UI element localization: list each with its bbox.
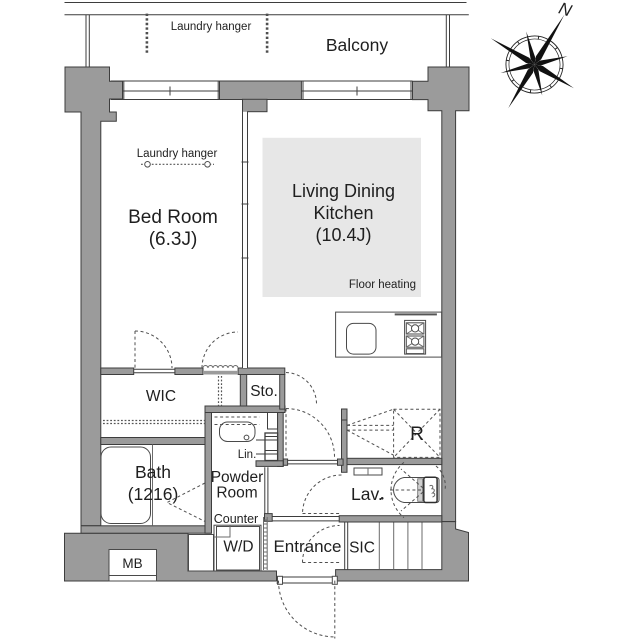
svg-text:Sto.: Sto. (250, 383, 278, 400)
svg-text:Living Dining: Living Dining (292, 181, 395, 201)
svg-text:SIC: SIC (349, 540, 375, 557)
svg-text:Floor heating: Floor heating (349, 279, 416, 291)
svg-text:Room: Room (216, 485, 257, 502)
svg-text:Lav.: Lav. (351, 484, 383, 504)
svg-text:Laundry hanger: Laundry hanger (137, 148, 218, 160)
svg-text:R: R (410, 424, 424, 445)
svg-text:Powder: Powder (211, 469, 264, 486)
svg-text:(6.3J): (6.3J) (149, 229, 198, 250)
svg-text:Laundry hanger: Laundry hanger (171, 21, 252, 33)
svg-text:Entrance: Entrance (273, 537, 341, 556)
svg-text:MB: MB (122, 556, 142, 571)
svg-text:N: N (556, 0, 574, 21)
svg-text:Counter: Counter (214, 512, 258, 526)
svg-text:Kitchen: Kitchen (313, 203, 373, 223)
svg-text:Lin.: Lin. (238, 449, 257, 461)
svg-text:W/D: W/D (223, 539, 253, 556)
svg-text:Balcony: Balcony (326, 35, 389, 55)
svg-text:Bath: Bath (135, 462, 171, 482)
svg-text:Bed Room: Bed Room (128, 207, 218, 228)
svg-text:(10.4J): (10.4J) (315, 225, 371, 245)
svg-text:WIC: WIC (146, 388, 176, 405)
svg-text:(1216): (1216) (128, 484, 179, 504)
